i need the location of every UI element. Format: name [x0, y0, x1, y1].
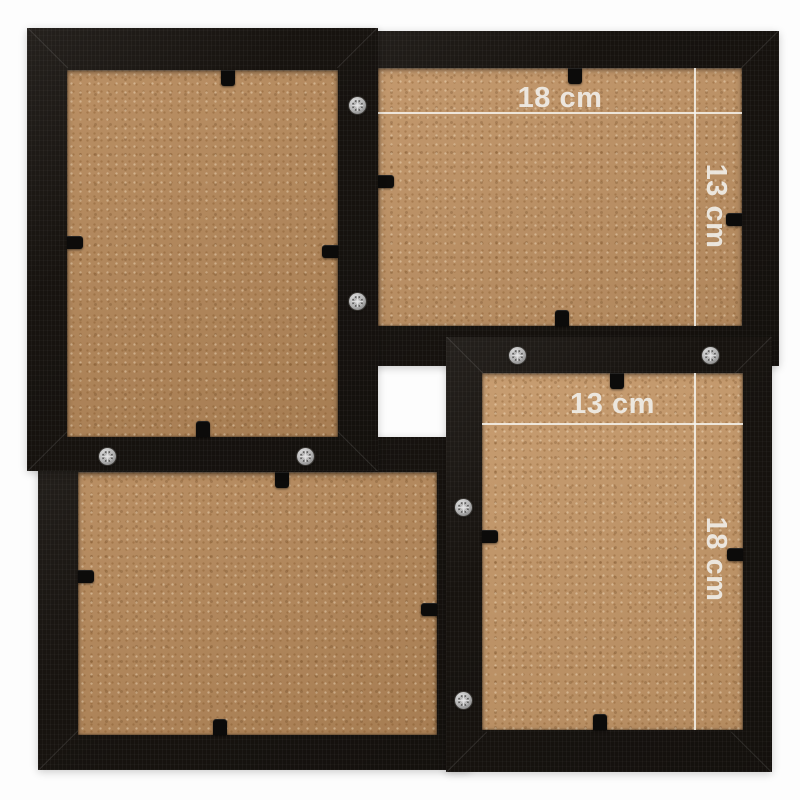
miter-joint-line: [27, 431, 68, 471]
retainer-clip: [378, 175, 394, 188]
backing-board-bottom-left: [78, 472, 437, 735]
retainer-clip: [568, 68, 582, 84]
retainer-clip: [727, 548, 743, 561]
miter-joint-line: [446, 732, 487, 772]
miter-joint-line: [731, 337, 772, 377]
joining-screw: [349, 293, 366, 310]
backing-board-top-left: [67, 70, 338, 437]
joining-screw: [349, 97, 366, 114]
collage-photo-frame-product-photo: 18 cm 13 cm 13 cm: [0, 0, 800, 800]
dimension-line-vertical: [694, 373, 696, 730]
retainer-clip: [275, 472, 289, 488]
joining-screw: [455, 692, 472, 709]
miter-joint-line: [38, 730, 79, 770]
dimension-label-width: 18 cm: [378, 83, 742, 113]
miter-joint-line: [446, 337, 487, 377]
miter-joint-line: [337, 431, 378, 471]
frame-bottom-right: 13 cm 18 cm: [446, 337, 772, 772]
retainer-clip: [555, 310, 569, 326]
retainer-clip: [67, 236, 83, 249]
retainer-clip: [322, 245, 338, 258]
retainer-clip: [78, 570, 94, 583]
miter-joint-line: [27, 28, 68, 68]
retainer-clip: [610, 373, 624, 389]
joining-screw: [455, 499, 472, 516]
frame-bottom-left: [38, 437, 470, 770]
dimension-label-width: 13 cm: [482, 389, 743, 419]
retainer-clip: [726, 213, 742, 226]
dimension-line-vertical: [694, 68, 696, 326]
retainer-clip: [421, 603, 437, 616]
miter-joint-line: [738, 31, 779, 71]
joining-screw: [297, 448, 314, 465]
frame-top-left: [27, 28, 378, 471]
dimension-line-horizontal: [482, 423, 743, 425]
joining-screw: [99, 448, 116, 465]
miter-joint-line: [337, 28, 378, 68]
retainer-clip: [221, 70, 235, 86]
joining-screw: [509, 347, 526, 364]
frame-top-right: 18 cm 13 cm: [338, 31, 779, 366]
retainer-clip: [196, 421, 210, 437]
backing-board-top-right: 18 cm 13 cm: [378, 68, 742, 326]
retainer-clip: [593, 714, 607, 730]
retainer-clip: [213, 719, 227, 735]
dimension-label-height: 13 cm: [701, 164, 731, 249]
retainer-clip: [482, 530, 498, 543]
miter-joint-line: [731, 732, 772, 772]
dimension-line-horizontal: [378, 112, 742, 114]
joining-screw: [702, 347, 719, 364]
backing-board-bottom-right: 13 cm 18 cm: [482, 373, 743, 730]
